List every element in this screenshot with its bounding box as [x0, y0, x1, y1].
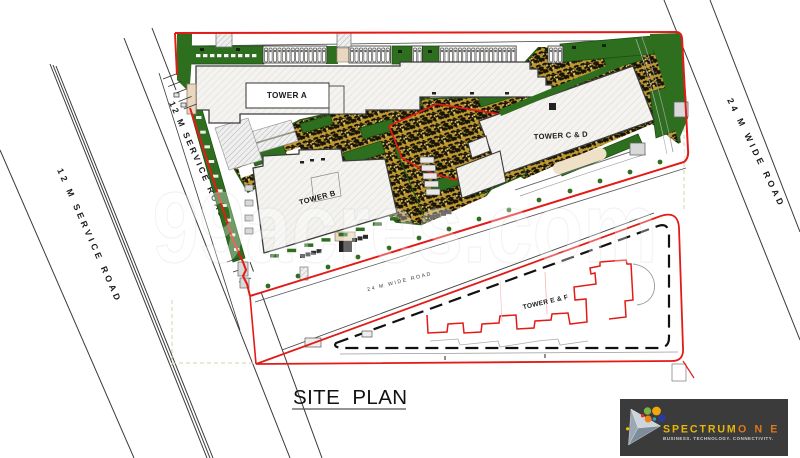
svg-text:99acres.com: 99acres.com: [153, 172, 658, 284]
svg-text:ONE: ONE: [738, 424, 786, 436]
svg-text:BUSINESS. TECHNOLOGY. CONNECTI: BUSINESS. TECHNOLOGY. CONNECTIVITY.: [663, 436, 774, 441]
svg-text:SITE PLAN: SITE PLAN: [293, 386, 408, 409]
svg-text:TOWER A: TOWER A: [267, 91, 307, 100]
svg-text:SPECTRUM: SPECTRUM: [663, 424, 738, 436]
